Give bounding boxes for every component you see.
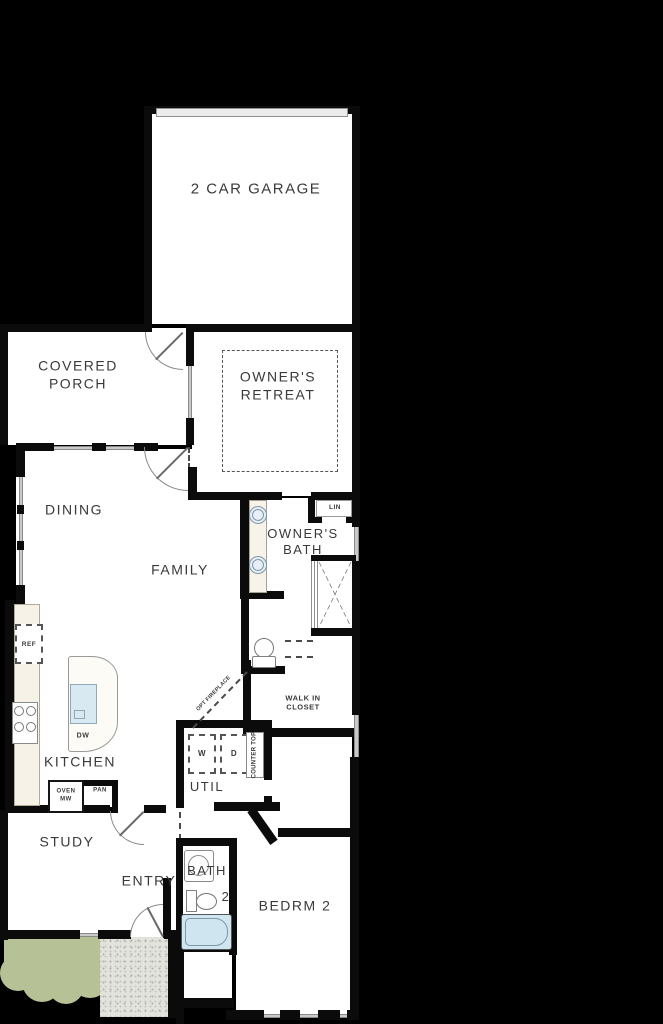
wall: [5, 930, 80, 939]
dw-label: DW: [77, 733, 90, 742]
wall: [176, 838, 236, 846]
shower-glass: [311, 561, 318, 628]
wall: [350, 757, 359, 1018]
wall: [352, 324, 360, 500]
window: [106, 446, 134, 450]
window: [354, 715, 359, 757]
front-stoop: [100, 937, 170, 1017]
kitchen-label: KITCHEN: [44, 753, 116, 771]
dishwasher-drawer: [74, 710, 85, 719]
cased-opening: [188, 447, 190, 469]
floor-plan: 2 CAR GARAGE COVERED PORCH OWNER'S RETRE…: [0, 0, 663, 1024]
cased-opening: [285, 640, 313, 642]
owners-bath-label: OWNER'S BATH: [263, 526, 343, 559]
window: [300, 1014, 318, 1018]
wall: [186, 332, 194, 366]
family-label: FAMILY: [151, 561, 209, 579]
study-label: STUDY: [40, 833, 95, 851]
window: [19, 477, 23, 591]
burner: [14, 706, 24, 716]
wall: [186, 324, 360, 332]
wall: [308, 517, 322, 523]
wall: [0, 810, 8, 940]
bath2-label: BATH: [187, 863, 227, 879]
sink: [252, 509, 264, 521]
wall: [352, 500, 360, 527]
util-label: UTIL: [190, 779, 224, 795]
wall: [144, 106, 152, 332]
porch-label: COVERED PORCH: [31, 358, 126, 393]
wall: [186, 418, 194, 445]
burner: [26, 706, 36, 716]
window-mullion: [17, 541, 24, 550]
toilet-bowl: [254, 638, 274, 658]
wall: [176, 720, 272, 728]
garage-label: 2 CAR GARAGE: [191, 181, 322, 200]
toilet-tank: [252, 656, 276, 668]
dining-family-floor: [16, 449, 242, 610]
garage-door: [156, 108, 348, 117]
dryer-label: D: [231, 749, 237, 759]
window: [80, 933, 98, 937]
counter-top-label: COUNTER TOP: [251, 732, 259, 779]
wall: [176, 720, 184, 808]
window: [340, 1014, 347, 1018]
wall: [16, 443, 25, 477]
window: [264, 1014, 280, 1018]
pan-label: PAN: [93, 787, 107, 795]
retreat-label: OWNER'S RETREAT: [223, 369, 333, 404]
dining-label: DINING: [45, 501, 103, 519]
cased-opening: [285, 656, 313, 658]
wall: [112, 780, 118, 813]
wall: [98, 930, 131, 939]
wall: [0, 324, 148, 332]
bath2-toilet-bowl: [196, 893, 217, 910]
bath2-number-label: 2: [222, 889, 231, 905]
wall: [144, 805, 166, 813]
wall: [311, 628, 356, 636]
window: [54, 446, 92, 450]
oven-mw-label: OVEN MW: [51, 789, 81, 804]
burner: [26, 722, 36, 732]
wall: [176, 998, 234, 1008]
entry-label: ENTRY: [122, 872, 177, 890]
garage-floor: [150, 112, 354, 324]
cased-opening: [179, 812, 181, 840]
wall: [226, 1010, 264, 1020]
lin-label: LIN: [329, 504, 341, 512]
ref-label: REF: [22, 641, 37, 649]
bedrm2-label: BEDRM 2: [259, 897, 332, 915]
walk-in-closet-label: WALK IN CLOSET: [277, 694, 329, 713]
wall: [214, 802, 280, 811]
wall: [16, 585, 25, 606]
wall: [240, 498, 249, 597]
wall: [352, 640, 360, 715]
washer-label: W: [198, 749, 206, 759]
wall: [352, 106, 360, 332]
burner: [14, 722, 24, 732]
window-mullion: [17, 505, 24, 514]
wall: [278, 828, 352, 837]
wall: [318, 1010, 340, 1020]
wall: [280, 1010, 300, 1020]
wall: [176, 944, 184, 1024]
shower-x-pattern: [318, 561, 352, 628]
wall: [0, 324, 8, 445]
family-kitchen-floor: [13, 610, 243, 725]
window: [188, 366, 192, 418]
sink: [252, 559, 264, 571]
wall: [347, 1010, 359, 1020]
wall: [188, 492, 282, 500]
bathtub-basin: [185, 918, 228, 946]
wall: [264, 720, 272, 780]
wall: [92, 443, 106, 451]
